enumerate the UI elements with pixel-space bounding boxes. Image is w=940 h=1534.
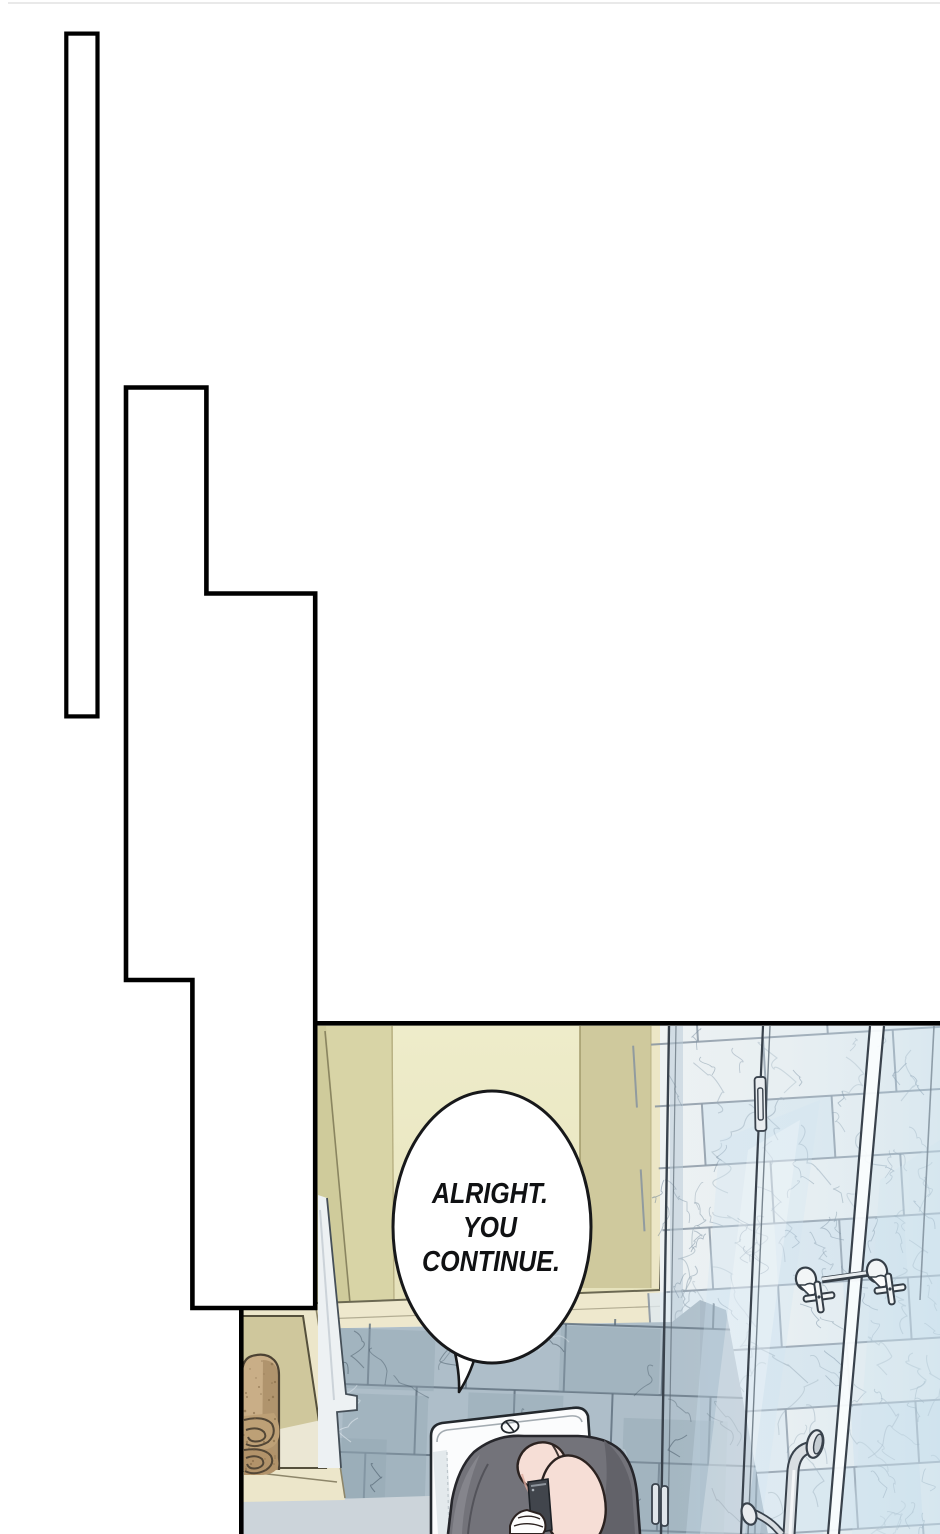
svg-text:CONTINUE.: CONTINUE. [422,1246,560,1278]
svg-text:YOU: YOU [463,1212,518,1244]
svg-text:ALRIGHT.: ALRIGHT. [431,1178,548,1210]
